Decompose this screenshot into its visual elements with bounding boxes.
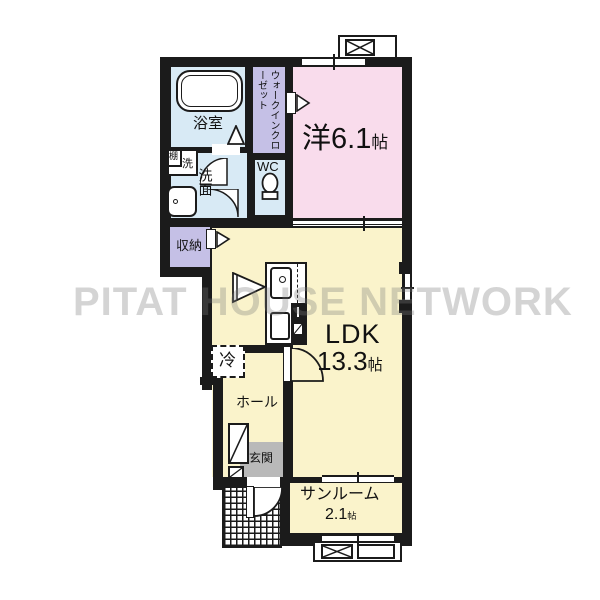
wc-label: WC bbox=[257, 160, 279, 174]
storage-door-leaf bbox=[206, 229, 216, 249]
sunroom-size-label: 2.1帖 bbox=[325, 507, 357, 524]
washbasin-drain bbox=[173, 199, 178, 204]
storage-label: 収納 bbox=[176, 239, 202, 253]
hall-label: ホール bbox=[236, 395, 278, 410]
shoe-cabinet-lower bbox=[228, 466, 244, 479]
wic-door-leaf bbox=[286, 92, 296, 114]
toilet bbox=[261, 172, 279, 202]
wic-door-arrow bbox=[296, 94, 311, 112]
ldk-size-label: 13.3帖 bbox=[317, 348, 383, 375]
watermark-text: PITAT HOUSE NETWORK bbox=[73, 280, 573, 325]
bath-door-gap bbox=[212, 144, 240, 155]
washer-shelf-label: 棚 bbox=[169, 152, 178, 161]
ac-unit-bottom bbox=[321, 544, 353, 559]
bath-door-triangle bbox=[227, 125, 245, 145]
terrace-inner-box bbox=[357, 544, 395, 559]
front-door-leaf bbox=[246, 486, 254, 518]
window-western-top bbox=[302, 57, 365, 67]
storage-door-arrow bbox=[216, 231, 231, 248]
sunroom-label: サンルーム bbox=[300, 487, 380, 504]
ac-unit-top bbox=[345, 39, 375, 56]
washer-label: 洗 bbox=[182, 159, 193, 171]
front-door-arc bbox=[254, 487, 283, 517]
entrance-label: 玄関 bbox=[249, 452, 273, 465]
shoe-cabinet bbox=[228, 423, 249, 464]
bathtub bbox=[176, 70, 243, 112]
window-sunroom-bottom bbox=[322, 534, 394, 543]
floor-plan: 浴室 ウォークインクローゼット 洋6.1帖 棚 洗 洗面 WC 収納 LDK 1… bbox=[0, 0, 600, 600]
bathtub-inner-line bbox=[181, 75, 238, 107]
fridge-label: 冷 bbox=[219, 352, 236, 370]
bath-label: 浴室 bbox=[193, 116, 223, 132]
washroom-label: 洗面 bbox=[196, 168, 214, 208]
ldk-door-leaf bbox=[283, 346, 291, 382]
wic-label: ウォークインクローゼット bbox=[254, 70, 279, 150]
washbasin bbox=[167, 186, 197, 217]
western-room-label: 洋6.1帖 bbox=[302, 124, 388, 154]
sliding-door-western-ldk bbox=[293, 219, 402, 228]
window-nub-top bbox=[399, 262, 412, 274]
